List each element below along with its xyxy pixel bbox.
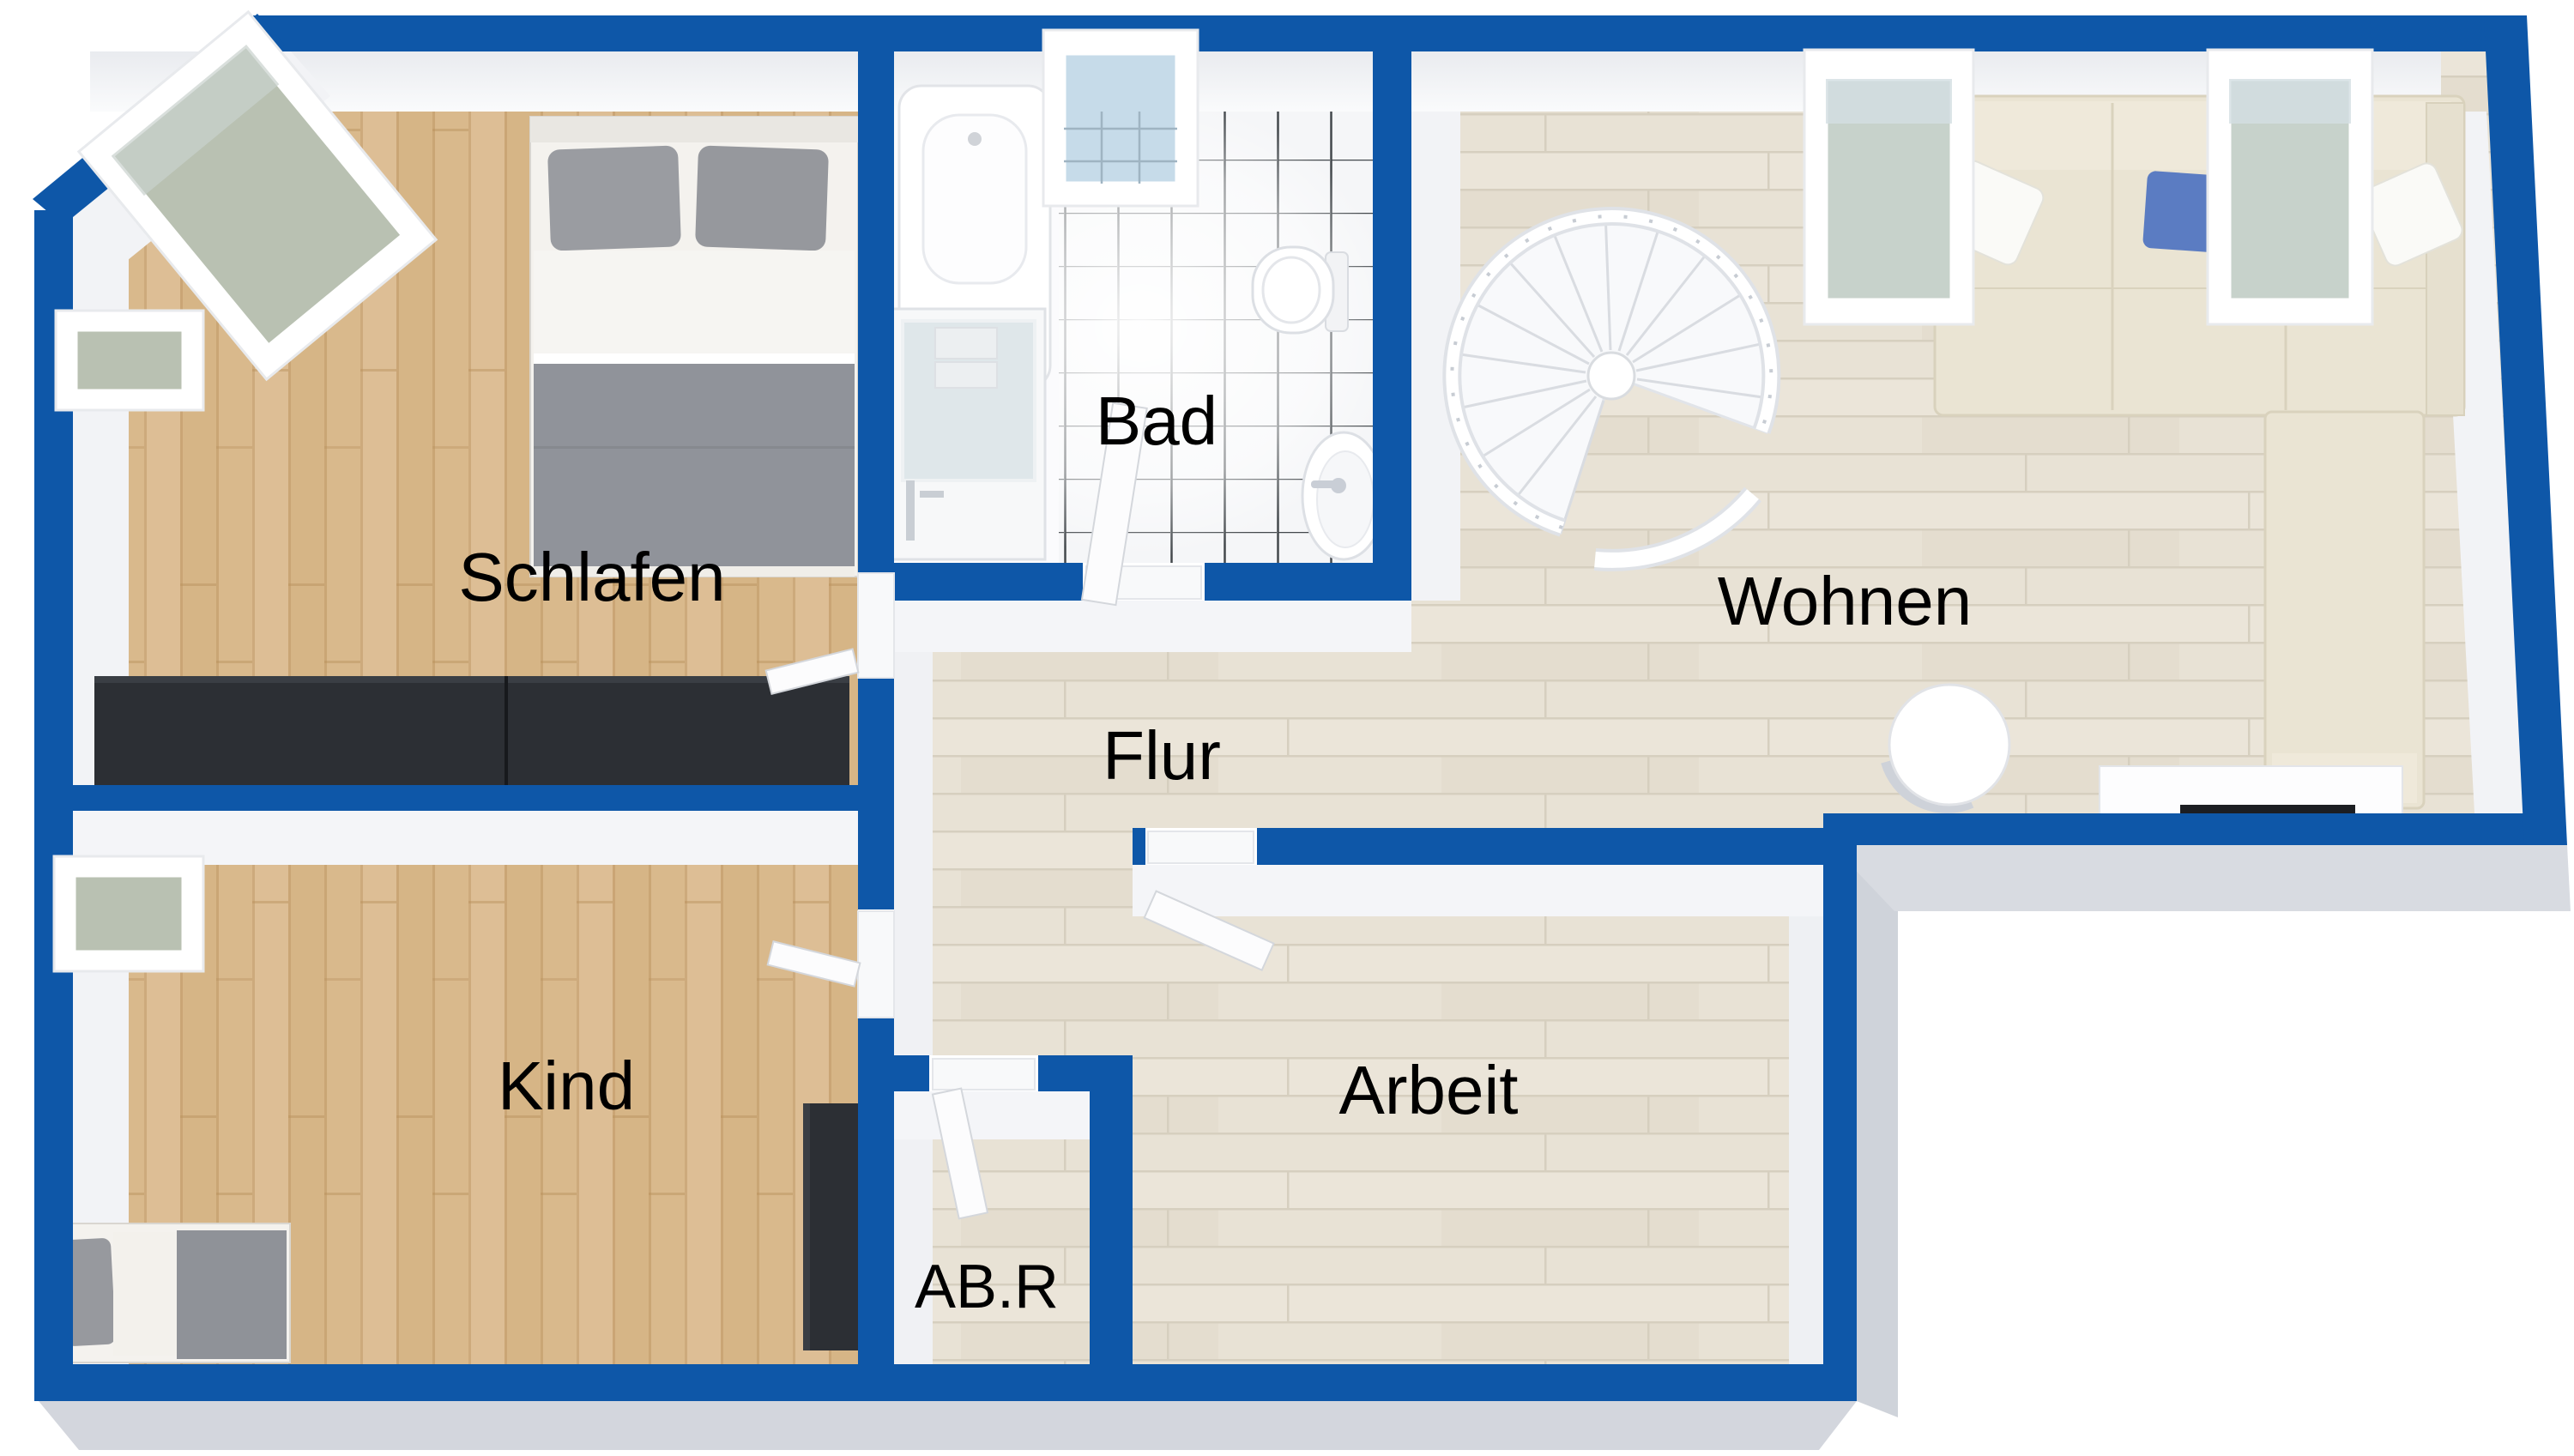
face-bad-south [877, 601, 1411, 652]
wall-abr-north-left [894, 1055, 929, 1091]
vanity-faucet [920, 491, 944, 498]
schlafen-door-sill [858, 573, 894, 678]
face-corridor-west [894, 652, 933, 1055]
label-kind: Kind [498, 1048, 635, 1124]
vanity-towel-bar [906, 480, 915, 541]
vanity-washbasin [892, 309, 1045, 559]
wall-exterior-top [253, 15, 2527, 51]
kind-bed-sheet [113, 1232, 177, 1356]
toilet [1253, 247, 1348, 333]
vanity-shelf-2 [935, 362, 997, 388]
table-top [1889, 685, 2009, 805]
window-glass [76, 329, 184, 391]
bathtub-drain [968, 132, 982, 146]
bed-fold [534, 353, 855, 364]
wall-arbeit-right [1823, 813, 1857, 1401]
sideboard-tv [2100, 766, 2402, 817]
wardrobe-top-edge [94, 676, 849, 683]
face-arbeit-east [1789, 916, 1823, 1401]
sofa-armrest-right [2426, 103, 2464, 415]
floor-plan: Schlafen Bad Wohnen Flur Kind AB.R Arbei… [0, 0, 2574, 1456]
kind-window [54, 856, 203, 971]
toilet-bowl [1263, 257, 1320, 323]
shadow-wohnen-south [1832, 845, 2571, 911]
wohnen-window-left [1804, 50, 1973, 324]
bed-headboard [530, 117, 858, 142]
double-bed [530, 117, 858, 577]
round-side-table [1886, 685, 2009, 808]
wall-schlafen-bad [858, 51, 894, 572]
wall-schlafen-flur [858, 678, 894, 909]
bed-blanket-seam [534, 446, 855, 449]
face-abr-north [894, 1091, 1090, 1139]
shadow-bottom [39, 1401, 1857, 1450]
wall-schlafen-kind [73, 785, 858, 811]
wall-kind-flur [858, 1017, 894, 1364]
bed-pillow-right [695, 145, 829, 251]
wall-bad-wohnen [1373, 51, 1411, 601]
bad-window [1043, 30, 1198, 206]
arbeit-door-sill [1148, 831, 1254, 863]
wardrobe-seam [505, 676, 508, 785]
vanity-shelf-1 [935, 328, 997, 359]
bed-pillow-left [547, 145, 681, 251]
label-bad: Bad [1096, 383, 1218, 459]
label-abr: AB.R [915, 1253, 1059, 1321]
abr-door-sill [933, 1059, 1035, 1090]
wohnen-window-right [2208, 50, 2372, 324]
label-arbeit: Arbeit [1339, 1052, 1519, 1128]
wall-bad-south-left [877, 563, 1083, 601]
wall-abr-arbeit [1090, 1055, 1133, 1364]
window-glass-reflection [2229, 79, 2351, 124]
wardrobe-body [94, 676, 849, 785]
face-abr-west [894, 1139, 933, 1364]
window-glass [74, 875, 184, 952]
window-glass-reflection [1826, 79, 1952, 124]
wall-arbeit-north-stub [1133, 828, 1145, 865]
window-glass [1064, 53, 1177, 184]
label-wohnen: Wohnen [1718, 563, 1973, 639]
sink-spout [1311, 480, 1338, 488]
shadow-arbeit-right [1857, 824, 1898, 1417]
small-sink [1302, 432, 1385, 559]
label-schlafen: Schlafen [458, 539, 725, 615]
stair-center-column [1588, 353, 1634, 399]
kind-desk-edge [803, 1103, 810, 1350]
sofa-backrest [1941, 101, 2458, 170]
kind-door-sill [858, 911, 894, 1018]
wall-arbeit-north [1257, 828, 1832, 865]
wall-wohnen-bottom [1832, 813, 2535, 845]
label-flur: Flur [1103, 717, 1221, 794]
bed-sheet [534, 251, 855, 360]
sink-bowl [1317, 451, 1374, 547]
schlafen-window-low [56, 311, 203, 410]
floor-plan-canvas: Schlafen Bad Wohnen Flur Kind AB.R Arbei… [0, 0, 2574, 1456]
single-bed [45, 1223, 290, 1362]
wardrobe [94, 676, 849, 785]
kind-bed-blanket [177, 1230, 287, 1359]
sofa-chaise [2265, 412, 2424, 808]
wall-exterior-bottom [34, 1364, 1857, 1401]
face-arbeit-north [1133, 865, 1823, 916]
